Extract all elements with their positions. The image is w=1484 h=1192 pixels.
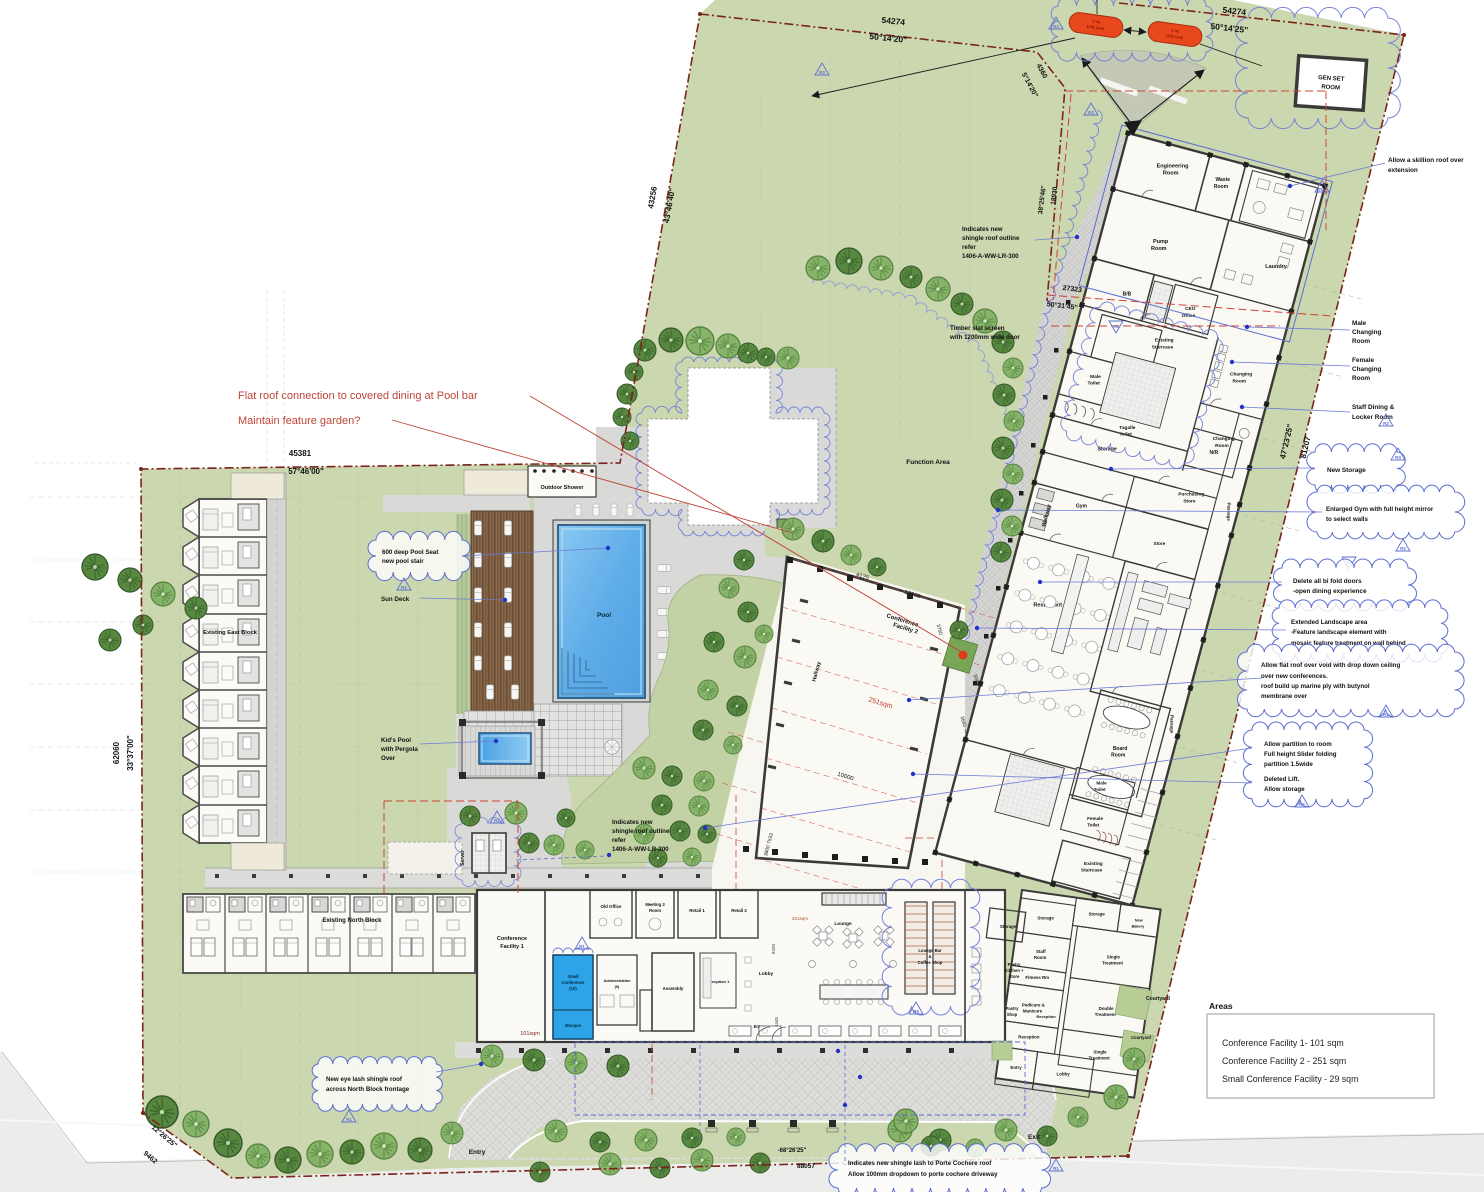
- svg-text:-open dining experience: -open dining experience: [1293, 588, 1367, 595]
- svg-text:1406-A-WW-LR-300: 1406-A-WW-LR-300: [612, 846, 669, 853]
- svg-text:Storage: Storage: [1088, 912, 1105, 917]
- svg-text:Existing North Block: Existing North Block: [322, 918, 382, 924]
- svg-text:Storage: Storage: [1000, 924, 1017, 929]
- svg-text:Staff Dining &: Staff Dining &: [1352, 404, 1395, 411]
- svg-text:Staff: Staff: [1036, 949, 1046, 954]
- svg-text:Delete all bi fold doors: Delete all bi fold doors: [1293, 578, 1362, 585]
- svg-text:Facility 1: Facility 1: [500, 944, 524, 950]
- svg-text:Maintain feature garden?: Maintain feature garden?: [238, 415, 360, 427]
- svg-text:Existing: Existing: [1155, 337, 1174, 343]
- svg-text:R1: R1: [494, 818, 500, 823]
- svg-text:R3: R3: [1053, 24, 1059, 29]
- svg-text:Room: Room: [1034, 955, 1047, 960]
- svg-text:(19): (19): [569, 986, 577, 991]
- svg-text:shingle roof outline: shingle roof outline: [962, 235, 1020, 242]
- svg-text:across North Block frontage: across North Block frontage: [326, 1086, 410, 1093]
- svg-text:Room: Room: [1151, 246, 1167, 252]
- svg-text:Passage: Passage: [1169, 715, 1174, 734]
- svg-text:Assembly: Assembly: [663, 986, 684, 991]
- svg-text:Courtyard: Courtyard: [1131, 1035, 1151, 1040]
- svg-text:Male: Male: [1096, 780, 1107, 785]
- svg-text:R2: R2: [1400, 546, 1406, 551]
- svg-text:Small Conference Facility - 29: Small Conference Facility - 29 sqm: [1222, 1074, 1358, 1084]
- svg-text:extension: extension: [1388, 167, 1418, 174]
- svg-text:Entry: Entry: [1010, 1065, 1022, 1070]
- svg-text:with Pergola: with Pergola: [380, 746, 418, 753]
- svg-text:Retail 2: Retail 2: [731, 908, 747, 913]
- svg-text:Changing: Changing: [1352, 329, 1382, 336]
- svg-text:Indicates new: Indicates new: [962, 226, 1003, 233]
- svg-text:Room: Room: [1352, 375, 1370, 382]
- svg-text:261sqm: 261sqm: [792, 916, 809, 921]
- svg-text:Passage: Passage: [1226, 502, 1231, 521]
- svg-text:Lobby: Lobby: [1056, 1072, 1070, 1077]
- svg-text:Indicates new shingle lash to: Indicates new shingle lash to Porte Coch…: [848, 1160, 992, 1167]
- svg-text:Outdoor Shower: Outdoor Shower: [540, 485, 584, 491]
- svg-text:Treatment: Treatment: [1102, 960, 1124, 965]
- svg-text:Store: Store: [1009, 974, 1020, 979]
- svg-text:R1: R1: [1053, 1166, 1059, 1171]
- svg-text:Existing: Existing: [1084, 861, 1103, 867]
- svg-text:new pool stair: new pool stair: [382, 558, 424, 565]
- svg-text:8420: 8420: [771, 943, 776, 954]
- svg-text:Conference: Conference: [497, 936, 527, 942]
- svg-text:Conference Facility 2 - 251 sq: Conference Facility 2 - 251 sqm: [1222, 1056, 1346, 1066]
- svg-text:Existing East Block: Existing East Block: [203, 630, 258, 636]
- svg-text:New eye lash shingle roof: New eye lash shingle roof: [326, 1076, 403, 1083]
- svg-text:Exit: Exit: [1028, 1134, 1041, 1141]
- svg-text:Purchasing: Purchasing: [1178, 492, 1204, 498]
- svg-text:R3: R3: [1088, 110, 1094, 115]
- svg-text:Waste: Waste: [1215, 177, 1230, 183]
- svg-text:Fitness Rm: Fitness Rm: [1025, 975, 1049, 980]
- svg-text:Sun Deck: Sun Deck: [381, 596, 410, 603]
- svg-text:with 1200mm wide door: with 1200mm wide door: [949, 334, 1020, 341]
- svg-text:Reception: Reception: [1018, 1034, 1040, 1039]
- svg-text:57°46'00": 57°46'00": [288, 467, 324, 476]
- svg-text:33°37'00": 33°37'00": [126, 735, 135, 771]
- svg-text:Function Area: Function Area: [906, 459, 950, 466]
- svg-text:V3: V3: [1113, 324, 1119, 329]
- svg-text:Lounge: Lounge: [834, 921, 852, 927]
- svg-text:-Feature landscape element wit: -Feature landscape element with: [1291, 629, 1387, 636]
- svg-text:New: New: [1135, 919, 1143, 923]
- svg-text:R3: R3: [1395, 455, 1401, 460]
- svg-text:Lounge Bar: Lounge Bar: [918, 948, 942, 953]
- svg-text:Pastry: Pastry: [1008, 962, 1021, 967]
- svg-text:Kid's Pool: Kid's Pool: [381, 737, 411, 744]
- svg-text:Toilet: Toilet: [1087, 823, 1099, 828]
- svg-text:N/R: N/R: [1209, 450, 1218, 456]
- svg-text:Meeting 3: Meeting 3: [645, 902, 665, 907]
- svg-text:Retail 1: Retail 1: [689, 908, 705, 913]
- svg-text:Room: Room: [1163, 170, 1179, 176]
- svg-text:45381: 45381: [289, 449, 312, 458]
- svg-text:Pastry: Pastry: [1006, 1006, 1019, 1011]
- svg-text:Single: Single: [1107, 954, 1121, 959]
- svg-text:Room: Room: [1111, 753, 1126, 759]
- svg-text:Room: Room: [1215, 443, 1229, 449]
- svg-text:&: &: [928, 954, 931, 959]
- svg-text:Room: Room: [1214, 184, 1229, 190]
- svg-text:Allow 100mm dropdown to porte: Allow 100mm dropdown to porte cochere dr…: [848, 1171, 998, 1178]
- svg-text:shingle roof outline: shingle roof outline: [612, 828, 670, 835]
- svg-text:1406-A-WW-LR-300: 1406-A-WW-LR-300: [962, 253, 1019, 260]
- svg-text:refer: refer: [962, 244, 976, 251]
- svg-text:Kitchen +: Kitchen +: [1005, 968, 1025, 973]
- svg-text:Deleted Lift.: Deleted Lift.: [1264, 776, 1300, 783]
- svg-text:Pool: Pool: [597, 612, 611, 619]
- svg-text:Old Office: Old Office: [601, 904, 623, 909]
- svg-text:Pump: Pump: [1153, 239, 1169, 245]
- svg-text:Single: Single: [1093, 1049, 1107, 1054]
- svg-text:Double: Double: [1099, 1006, 1114, 1011]
- svg-text:Over: Over: [381, 755, 396, 762]
- svg-text:Male: Male: [1090, 374, 1101, 380]
- svg-text:Changing: Changing: [1230, 372, 1252, 378]
- svg-text:Staircase: Staircase: [1152, 344, 1174, 350]
- svg-text:Room: Room: [649, 908, 661, 913]
- svg-text:Changing: Changing: [1352, 366, 1382, 373]
- svg-text:R1: R1: [579, 944, 585, 949]
- svg-text:Coffee Shop: Coffee Shop: [918, 960, 943, 965]
- svg-text:Flat roof connection to covere: Flat roof connection to covered dining a…: [238, 390, 478, 402]
- svg-text:R1: R1: [1319, 187, 1325, 192]
- svg-text:to select walls: to select walls: [1326, 516, 1369, 523]
- svg-text:Pedicure &: Pedicure &: [1022, 1003, 1046, 1008]
- svg-text:B/B: B/B: [1123, 291, 1132, 297]
- svg-text:R6: R6: [913, 1009, 919, 1014]
- svg-text:R1: R1: [1383, 712, 1389, 717]
- svg-text:Conference Facility 1- 101 sqm: Conference Facility 1- 101 sqm: [1222, 1038, 1344, 1048]
- svg-text:Allow partition to room: Allow partition to room: [1264, 741, 1332, 748]
- svg-text:CEO: CEO: [1185, 306, 1196, 312]
- svg-text:Storage: Storage: [1037, 916, 1054, 921]
- svg-text:refer: refer: [612, 837, 626, 844]
- svg-text:roof build up marine ply with: roof build up marine ply with butynol: [1261, 683, 1370, 690]
- svg-text:R2: R2: [1383, 421, 1389, 426]
- svg-text:Allow a skillion roof over: Allow a skillion roof over: [1388, 157, 1464, 164]
- svg-text:Female: Female: [1352, 357, 1374, 364]
- svg-text:Room: Room: [1232, 378, 1246, 384]
- svg-text:Areas: Areas: [1209, 1001, 1233, 1011]
- svg-text:Gym: Gym: [1076, 504, 1088, 510]
- svg-text:Timber slat screen: Timber slat screen: [950, 325, 1005, 332]
- svg-text:6445: 6445: [774, 1016, 779, 1027]
- svg-text:88057: 88057: [797, 1163, 815, 1170]
- svg-text:-68°26'25": -68°26'25": [778, 1148, 807, 1154]
- svg-text:over new conferences.: over new conferences.: [1261, 673, 1328, 680]
- svg-text:Treatment: Treatment: [1089, 1055, 1111, 1060]
- svg-text:Bakery: Bakery: [1132, 924, 1146, 928]
- svg-text:Full height Slider folding: Full height Slider folding: [1264, 751, 1337, 758]
- svg-text:Treatment: Treatment: [1095, 1012, 1117, 1017]
- svg-text:Mosque: Mosque: [565, 1023, 581, 1028]
- svg-text:Allow storage: Allow storage: [1264, 786, 1305, 793]
- svg-text:partition 1.5wide: partition 1.5wide: [1264, 761, 1313, 768]
- svg-text:R3: R3: [819, 70, 825, 75]
- svg-text:Male: Male: [1352, 320, 1367, 327]
- svg-text:62060: 62060: [112, 741, 121, 764]
- svg-text:101sqm: 101sqm: [520, 1031, 540, 1037]
- svg-text:Indicates new: Indicates new: [612, 819, 653, 826]
- svg-text:Administration: Administration: [604, 979, 631, 983]
- svg-text:Toilet: Toilet: [1087, 381, 1100, 387]
- svg-text:Small: Small: [567, 974, 578, 979]
- svg-text:Shop: Shop: [1007, 1012, 1018, 1017]
- svg-text:Store: Store: [1183, 498, 1196, 504]
- svg-text:(9): (9): [615, 985, 620, 989]
- svg-text:Enlarged Gym with full height: Enlarged Gym with full height mirror: [1326, 506, 1434, 513]
- svg-text:Server: Server: [460, 850, 466, 866]
- svg-text:Staircase: Staircase: [1081, 868, 1103, 874]
- svg-text:Conference: Conference: [561, 980, 585, 985]
- svg-text:New Storage: New Storage: [1327, 467, 1366, 474]
- svg-text:600 deep Pool Seat: 600 deep Pool Seat: [382, 549, 438, 556]
- svg-text:Lobby: Lobby: [759, 971, 774, 977]
- svg-text:R2: R2: [401, 585, 407, 590]
- svg-text:Board: Board: [1113, 746, 1127, 752]
- svg-text:R2: R2: [1299, 802, 1305, 807]
- svg-text:Reception: Reception: [1036, 1014, 1056, 1019]
- svg-text:R1: R1: [346, 1117, 352, 1122]
- svg-text:Allow flat roof over void with: Allow flat roof over void with drop down…: [1261, 662, 1400, 669]
- svg-text:membrane over: membrane over: [1261, 693, 1308, 700]
- svg-text:Female: Female: [1087, 816, 1103, 821]
- svg-text:Toilet: Toilet: [1094, 787, 1106, 792]
- svg-text:Extended Landscape area: Extended Landscape area: [1291, 619, 1368, 626]
- svg-text:Room: Room: [1352, 338, 1370, 345]
- svg-text:Entry: Entry: [469, 1149, 486, 1156]
- svg-text:Manicure: Manicure: [1023, 1009, 1043, 1014]
- svg-text:Engineering: Engineering: [1157, 164, 1189, 170]
- svg-text:Store: Store: [1154, 541, 1166, 546]
- svg-text:Tagalle: Tagalle: [1119, 425, 1136, 431]
